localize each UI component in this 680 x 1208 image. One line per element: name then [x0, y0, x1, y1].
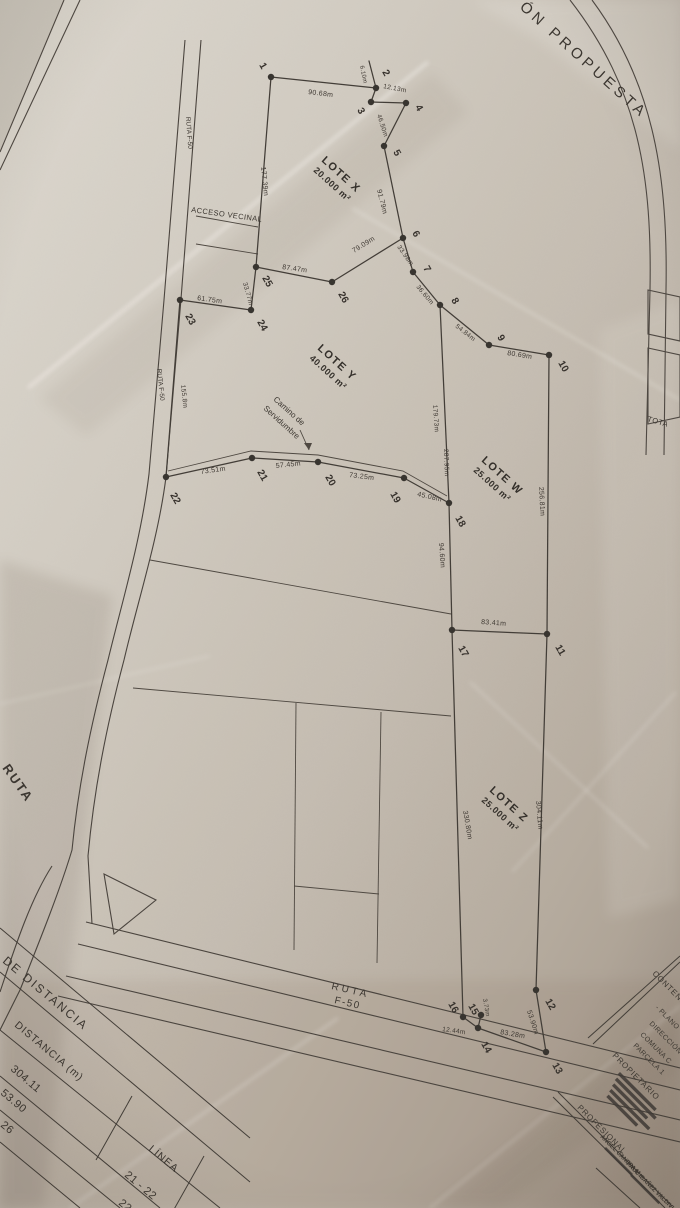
- photographed-survey-plan: 1234567891011121314151617181920212223242…: [0, 0, 680, 1208]
- plan-canvas: 1234567891011121314151617181920212223242…: [0, 0, 680, 1208]
- vignette: [0, 0, 680, 1208]
